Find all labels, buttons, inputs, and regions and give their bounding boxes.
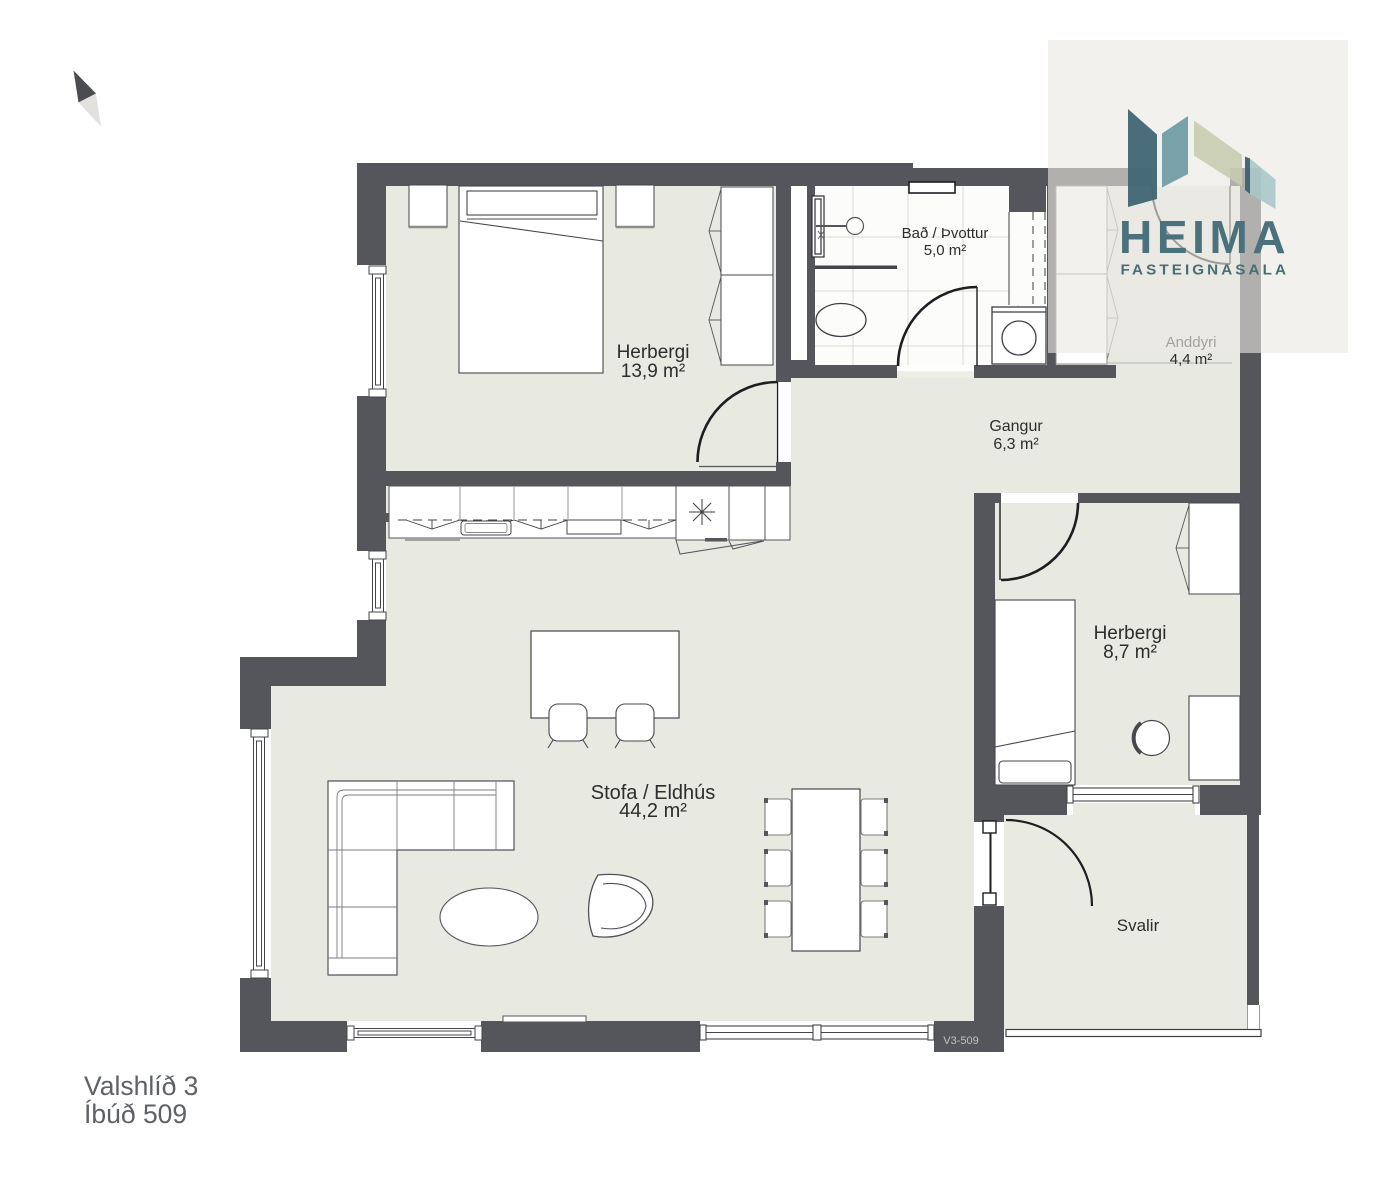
svg-text:Íbúð 509: Íbúð 509 — [84, 1099, 187, 1129]
svg-text:Svalir: Svalir — [1117, 916, 1160, 935]
svg-text:FASTEIGNASALA: FASTEIGNASALA — [1121, 262, 1290, 279]
svg-text:5,0 m²: 5,0 m² — [924, 242, 967, 259]
svg-text:Herbergi: Herbergi — [617, 342, 690, 363]
svg-text:Gangur: Gangur — [989, 418, 1043, 435]
svg-text:13,9 m²: 13,9 m² — [621, 361, 685, 382]
svg-text:Valshlíð 3: Valshlíð 3 — [84, 1071, 198, 1101]
svg-text:V3-509: V3-509 — [943, 1035, 978, 1047]
svg-text:6,3 m²: 6,3 m² — [993, 436, 1039, 453]
svg-text:Herbergi: Herbergi — [1094, 623, 1167, 644]
svg-text:44,2 m²: 44,2 m² — [619, 800, 687, 822]
svg-text:HEIMA: HEIMA — [1119, 211, 1290, 263]
svg-text:Bað / Þvottur: Bað / Þvottur — [902, 225, 989, 242]
svg-text:4,4 m²: 4,4 m² — [1170, 351, 1213, 368]
svg-text:8,7 m²: 8,7 m² — [1103, 642, 1157, 663]
